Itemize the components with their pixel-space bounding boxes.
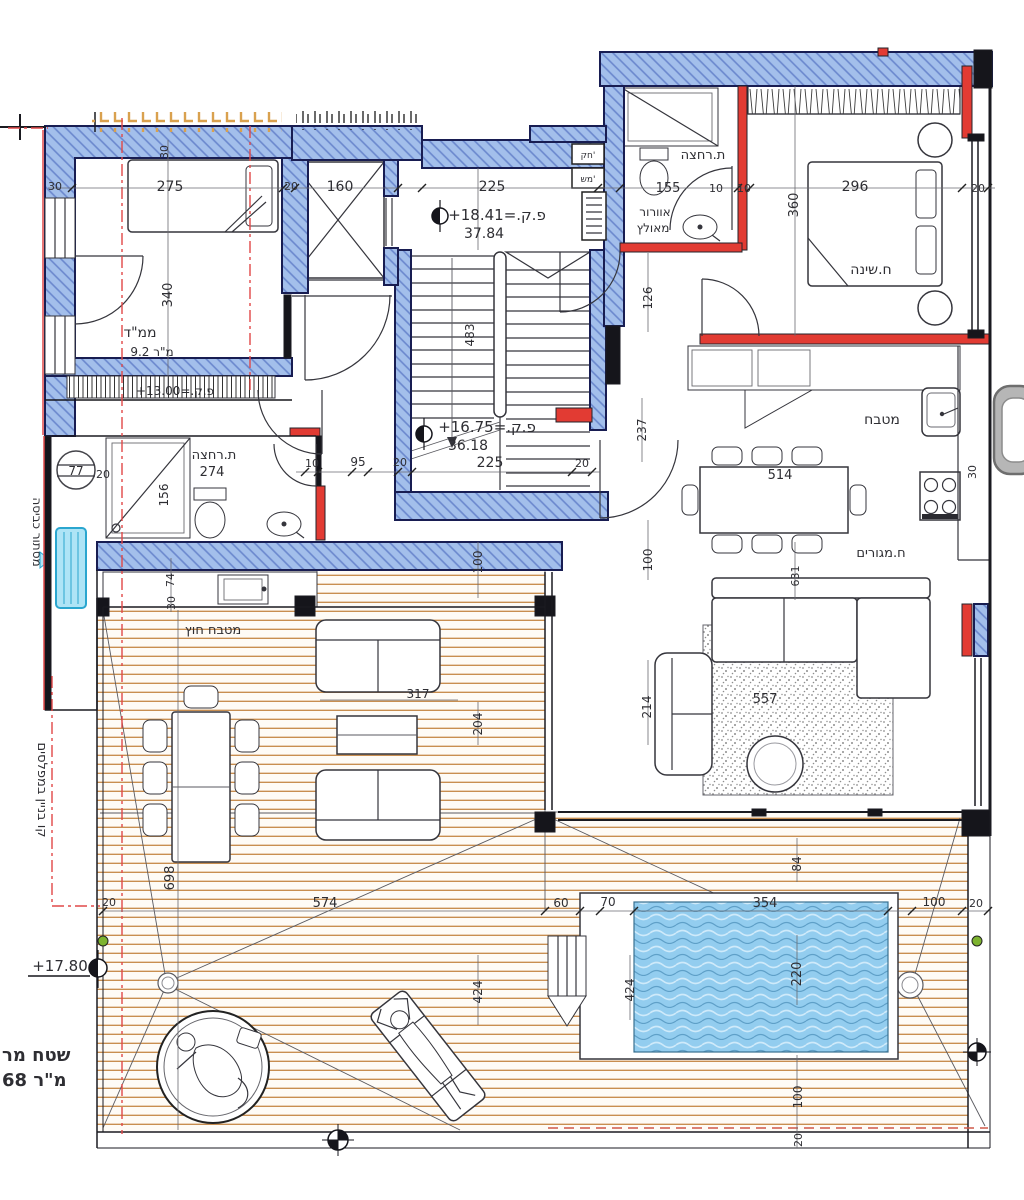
pergola-column [295, 596, 315, 616]
dim-631: 631 [789, 566, 802, 587]
dim-pool-60: 60 [553, 896, 568, 910]
note-area-1: שטח מר [2, 1045, 71, 1066]
room-mamad: ממ"ד [123, 325, 156, 341]
floor-plan: 30 30 275 20 340 160 225 483 155 10 296 … [0, 0, 1024, 1200]
dim-204: 204 [471, 713, 485, 736]
dim-stair-width: 225 [479, 179, 506, 195]
dim-table-514: 514 [768, 468, 793, 483]
dim-bedroom-20: 20 [971, 182, 985, 195]
level-mid: +16.75=.ק.פ [438, 418, 536, 436]
dim-hall-20: 20 [393, 456, 407, 469]
shaft-label-1: חק' [581, 151, 596, 161]
dim-hall-95: 95 [350, 455, 365, 469]
dim-shower-156: 156 [157, 484, 171, 507]
tick-strips [92, 110, 422, 132]
dim-pool-220: 220 [790, 962, 805, 987]
dim-bedroom-10: 10 [737, 182, 751, 195]
green-marker [98, 936, 108, 946]
dim-rug-557: 557 [753, 692, 778, 707]
dim-left-30: 30 [48, 180, 62, 193]
shaft-label-2: מש' [581, 175, 596, 185]
dim-30b: 30 [165, 596, 178, 610]
level-upper: +18.41=.ק.פ [448, 206, 546, 224]
room-vent-2: מאולץ [637, 221, 670, 235]
pergola-column [535, 812, 555, 832]
level-mamad: +13.00=.ק.פ [136, 384, 214, 398]
dim-laundry-20: 20 [96, 468, 110, 481]
pool-water [634, 902, 888, 1052]
dim-hall-10: 10 [305, 457, 319, 470]
dim-317: 317 [407, 687, 430, 701]
dim-top-30: 30 [158, 145, 171, 159]
dim-100-left: 100 [471, 551, 485, 574]
sofa-chaise [857, 598, 930, 698]
toilet [195, 502, 225, 538]
pool [548, 893, 898, 1059]
stove [920, 472, 960, 520]
room-bath-mid: ת.רחצה [192, 448, 237, 463]
dim-pool-424: 424 [623, 979, 637, 1002]
note-area-2: 68 מ"ר [2, 1070, 67, 1091]
dim-stair-height: 483 [463, 324, 477, 347]
nightstand [918, 123, 952, 157]
stair-handrail [494, 252, 506, 417]
round-coffee-table [747, 736, 803, 792]
dim-deck-424: 424 [471, 981, 485, 1004]
dim-100-bottom: 100 [791, 1086, 805, 1109]
dim-pool-100: 100 [923, 895, 946, 909]
room-kitchen: מטבח [864, 412, 900, 428]
bubble-77: 77 [68, 464, 83, 478]
dim-214: 214 [640, 696, 654, 719]
dim-bath1-width: 155 [656, 181, 681, 196]
sofa-back [712, 578, 930, 598]
note-building-line: קו בניין במפלסים [34, 743, 49, 838]
dim-pool-20: 20 [969, 897, 983, 910]
dim-bedroom-height: 360 [787, 193, 802, 218]
dim-landing-20: 20 [575, 457, 589, 470]
grey-equipment [994, 386, 1024, 474]
room-vent-1: אוורור [639, 205, 670, 219]
dim-kitchen-30: 30 [966, 465, 979, 479]
mamad-furniture [128, 160, 278, 232]
person-head [177, 1033, 195, 1051]
green-marker [972, 936, 982, 946]
round-daybed-with-person [157, 1011, 269, 1123]
dim-landing-225: 225 [477, 455, 504, 471]
dim-74: 74 [164, 573, 177, 587]
level-deck: +17.80 [32, 957, 88, 975]
dim-20-bottom: 20 [792, 1133, 805, 1147]
room-bedroom: ח.שינה [850, 262, 891, 278]
outdoor-kitchen-counter [103, 572, 317, 607]
dim-mamad-20: 20 [284, 180, 298, 193]
dim-mamad-width: 275 [157, 179, 184, 195]
dim-574: 574 [313, 896, 338, 911]
dim-bath1-10: 10 [709, 182, 723, 195]
room-living: ח.מגורים [856, 546, 905, 561]
room-bath-mid-width: 274 [200, 465, 225, 480]
dim-237: 237 [635, 419, 649, 442]
dim-100-mid: 100 [641, 549, 655, 572]
level-mid-abs: 36.18 [448, 438, 488, 454]
dim-698: 698 [163, 866, 178, 891]
label-laundry-screen: מסתור כביסה [30, 497, 44, 566]
dim-bed-width: 296 [842, 179, 869, 195]
dim-mamad-height: 340 [161, 283, 176, 308]
room-outdoor-kitchen: מטבח חוץ [185, 623, 241, 638]
dim-pool-354: 354 [753, 896, 778, 911]
dim-pool-70: 70 [600, 895, 615, 909]
dim-vent-height: 126 [641, 287, 655, 310]
dim-deck-20: 20 [102, 896, 116, 909]
nightstand [918, 291, 952, 325]
dim-84: 84 [790, 856, 804, 871]
room-mamad-area: 9.2 מ"ר [130, 345, 173, 359]
level-upper-abs: 37.84 [464, 226, 504, 242]
room-bath-top: ת.רחצה [681, 148, 726, 163]
dim-elevator-width: 160 [327, 179, 354, 195]
